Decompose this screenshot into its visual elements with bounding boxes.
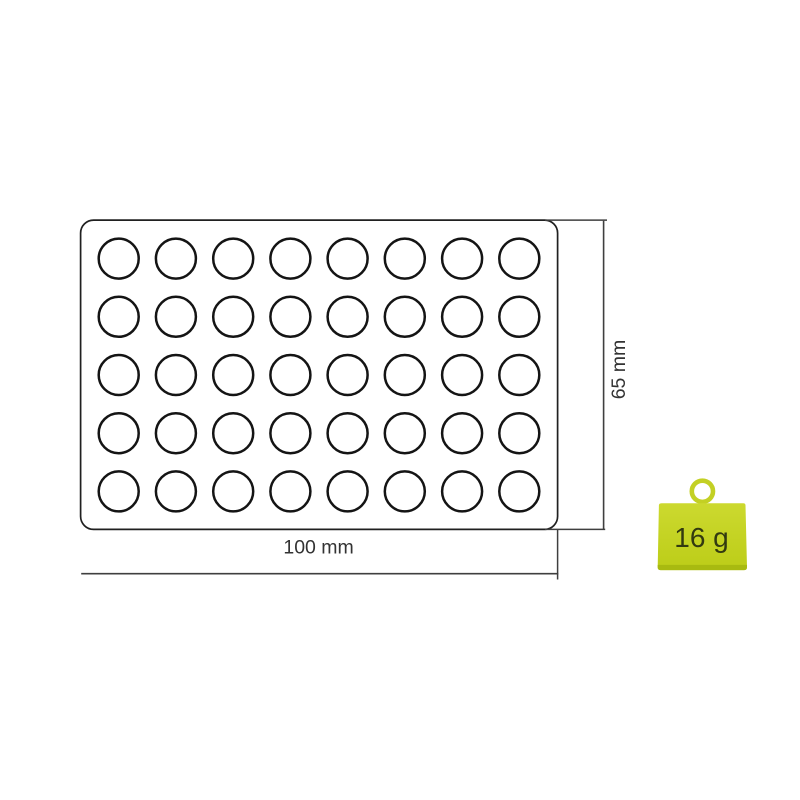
- svg-text:65 mm: 65 mm: [608, 340, 630, 400]
- svg-text:100 mm: 100 mm: [283, 536, 353, 558]
- svg-text:16 g: 16 g: [674, 522, 729, 553]
